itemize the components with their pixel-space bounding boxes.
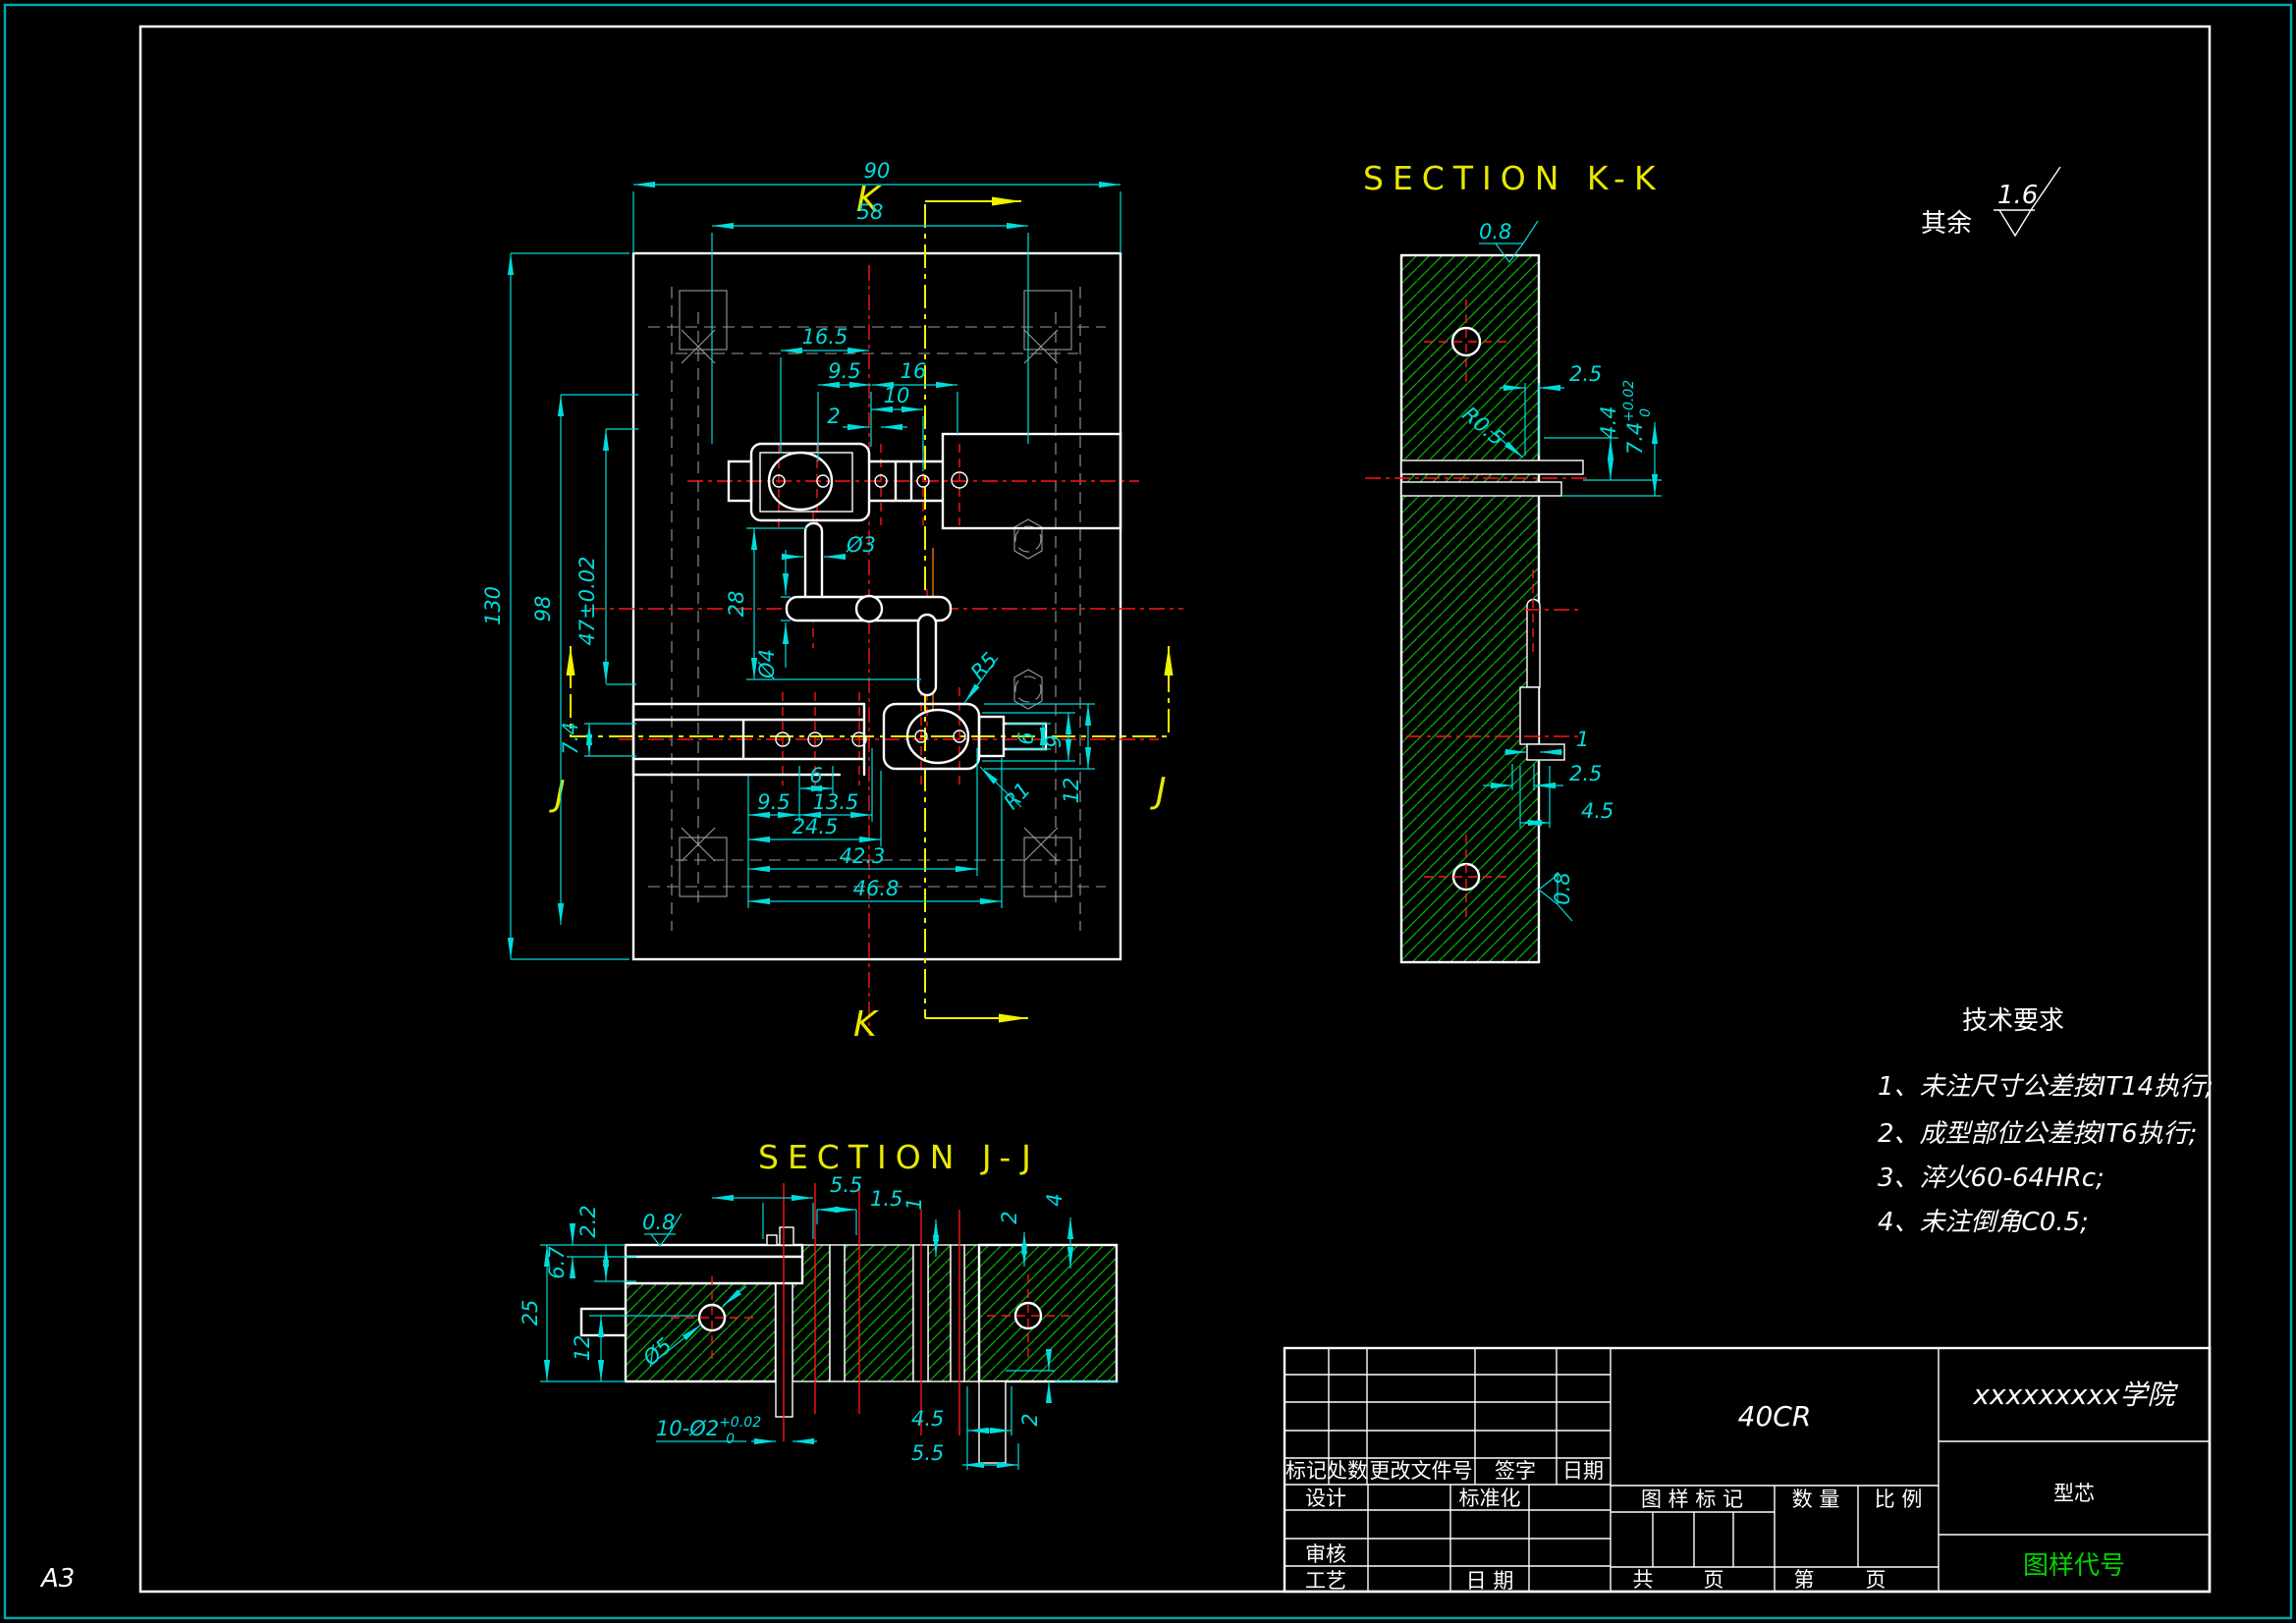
kk-rough-side: 0.8 [1551, 872, 1574, 904]
section-kk-title: SECTION K-K [1363, 159, 1665, 197]
dim-12-right: 12 [1060, 778, 1083, 804]
dim-28: 28 [725, 591, 748, 618]
kk-dim-7-4-main: 7.4 [1623, 422, 1647, 455]
dim-58: 58 [857, 200, 884, 224]
dim-16: 16 [901, 359, 927, 383]
tb-design: 设计 [1305, 1487, 1346, 1510]
dim-47: 47±0.02 [575, 556, 599, 645]
dim-9-5-bottom: 9.5 [757, 790, 790, 814]
section-jj: SECTION J-J 0.8 [519, 1138, 1117, 1470]
jj-pins-sup: +0.02 [719, 1415, 761, 1431]
tb-date2: 日 期 [1466, 1569, 1514, 1593]
jj-dim-25: 25 [519, 1300, 542, 1326]
dims-top: 90 58 16.5 9.5 16 10 2 [633, 159, 1121, 471]
dim-2-top: 2 [827, 405, 840, 428]
tech-item-1: 1、未注尺寸公差按IT14执行; [1878, 1072, 2214, 1102]
tb-quantity: 数 量 [1792, 1488, 1840, 1511]
main-view: K K J J [481, 159, 1183, 1045]
tech-requirements: 技术要求 1、未注尺寸公差按IT14执行; 2、成型部位公差按IT6执行; 3、… [1878, 1006, 2214, 1237]
jj-dim-12: 12 [571, 1335, 594, 1362]
kk-dim-2-5b: 2.5 [1569, 762, 1602, 785]
jj-dim-1-5: 1.5 [870, 1187, 902, 1211]
dim-9-right: 9 [1042, 734, 1066, 747]
dim-dia3: Ø3 [846, 533, 876, 557]
dims-bottom: 6 9.5 13.5 24.5 42.3 46.8 [748, 748, 1002, 908]
tb-pages2: 页 [1866, 1568, 1886, 1592]
dim-r1: R1 [999, 778, 1035, 814]
section-kk: SECTION K-K 0.8 2.5 R0.5 4.4 [1363, 159, 1665, 962]
dim-98: 98 [531, 596, 555, 622]
section-jj-title: SECTION J-J [758, 1138, 1040, 1176]
jj-dim-5-5-top: 5.5 [830, 1173, 862, 1197]
centerlines [589, 265, 1183, 1036]
general-roughness-note: 其余 1.6 [1921, 167, 2060, 239]
title-block: 标记 处数 更改文件号 签字 日期 设计 标准化 审核 工艺 日 期 40CR … [1285, 1348, 2210, 1593]
jj-dim-2-bottom: 2 [1018, 1413, 1042, 1426]
dim-24-5: 24.5 [793, 815, 839, 839]
dim-90: 90 [864, 159, 891, 183]
tech-item-4: 4、未注倒角C0.5; [1878, 1208, 2089, 1237]
tech-title: 技术要求 [1962, 1006, 2064, 1036]
cad-drawing-canvas: A3 其余 1.6 技术要求 1、未注尺寸公差按IT14执行; 2、成型部位公差… [0, 0, 2296, 1623]
jj-pins-main: 10-Ø2 [656, 1417, 719, 1440]
cut-label-K-bottom: K [853, 1004, 879, 1045]
sheet-format-label: A3 [39, 1564, 75, 1594]
tb-drawing-code: 图样代号 [2023, 1551, 2125, 1581]
sheet-frame: A3 [5, 5, 2291, 1618]
cut-label-J-left: J [549, 774, 566, 814]
tb-material: 40CR [1738, 1400, 1812, 1433]
dim-dia4: Ø4 [755, 649, 779, 679]
roughness-value: 1.6 [1997, 181, 2038, 210]
dim-42-3: 42.3 [840, 844, 886, 868]
kk-dim-7-4: 7.4+0.020 [1621, 380, 1654, 455]
jj-dim-2-2: 2.2 [576, 1205, 600, 1237]
tb-change: 更改文件号 [1370, 1459, 1473, 1483]
kk-dim-7-4-sub: 0 [1638, 408, 1654, 417]
jj-dim-5-5-bottom: 5.5 [911, 1441, 944, 1465]
tb-count: 处数 [1327, 1459, 1368, 1483]
tb-date: 日期 [1562, 1459, 1604, 1483]
dim-6-right: 6 [1014, 731, 1038, 744]
tb-standard: 标准化 [1459, 1487, 1521, 1510]
dim-130: 130 [481, 586, 505, 625]
dim-13-5: 13.5 [813, 790, 859, 814]
dim-6-bottom: 6 [809, 764, 822, 787]
jj-pins-sub: 0 [726, 1432, 735, 1447]
tech-item-2: 2、成型部位公差按IT6执行; [1878, 1119, 2197, 1149]
tb-school: xxxxxxxxx学院 [1972, 1379, 2178, 1411]
tb-total: 共 [1633, 1568, 1654, 1592]
dims-right: 6 9 12 [982, 704, 1095, 803]
tech-item-3: 3、淬火60-64HRc; [1878, 1163, 2105, 1193]
tb-no: 第 [1794, 1568, 1815, 1592]
jj-dim-4-5: 4.5 [911, 1407, 944, 1431]
kk-dim-7-4-sup: +0.02 [1621, 380, 1637, 422]
tb-pages: 页 [1704, 1568, 1724, 1592]
jj-rough: 0.8 [642, 1211, 675, 1234]
jj-dim-2-top: 2 [998, 1211, 1021, 1223]
tb-part-name: 型芯 [2053, 1482, 2095, 1505]
tb-mark: 标记 [1285, 1459, 1327, 1483]
dim-10: 10 [884, 384, 910, 407]
cut-label-J-right: J [1150, 771, 1167, 811]
tb-stamp: 图 样 标 记 [1641, 1488, 1743, 1511]
kk-rough-top: 0.8 [1479, 220, 1511, 243]
dim-9-5-top: 9.5 [828, 359, 860, 383]
dim-r5: R5 [966, 648, 1003, 684]
dims-left: 130 98 47±0.02 7.4 [481, 253, 638, 959]
dim-16-5: 16.5 [802, 325, 848, 349]
tb-scale: 比 例 [1875, 1488, 1923, 1511]
jj-dim-1: 1 [902, 1197, 926, 1210]
jj-dim-6-7: 6.7 [545, 1246, 569, 1279]
jj-dim-4: 4 [1043, 1193, 1066, 1206]
dim-7-4: 7.4 [559, 722, 582, 754]
dim-46-8: 46.8 [853, 877, 900, 900]
roughness-prefix: 其余 [1921, 209, 1972, 239]
kk-dim-4-5: 4.5 [1581, 799, 1613, 823]
dims-center: 28 Ø4 Ø3 R5 R1 [725, 528, 1035, 814]
kk-dim-1: 1 [1576, 728, 1589, 751]
tb-process: 工艺 [1305, 1569, 1346, 1593]
kk-dim-2-5: 2.5 [1569, 362, 1602, 386]
tb-audit: 审核 [1305, 1542, 1346, 1566]
tb-sign: 签字 [1495, 1459, 1536, 1483]
kk-dim-4-4: 4.4 [1597, 406, 1620, 438]
jj-pins-label: 10-Ø2+0.020 [656, 1415, 761, 1447]
